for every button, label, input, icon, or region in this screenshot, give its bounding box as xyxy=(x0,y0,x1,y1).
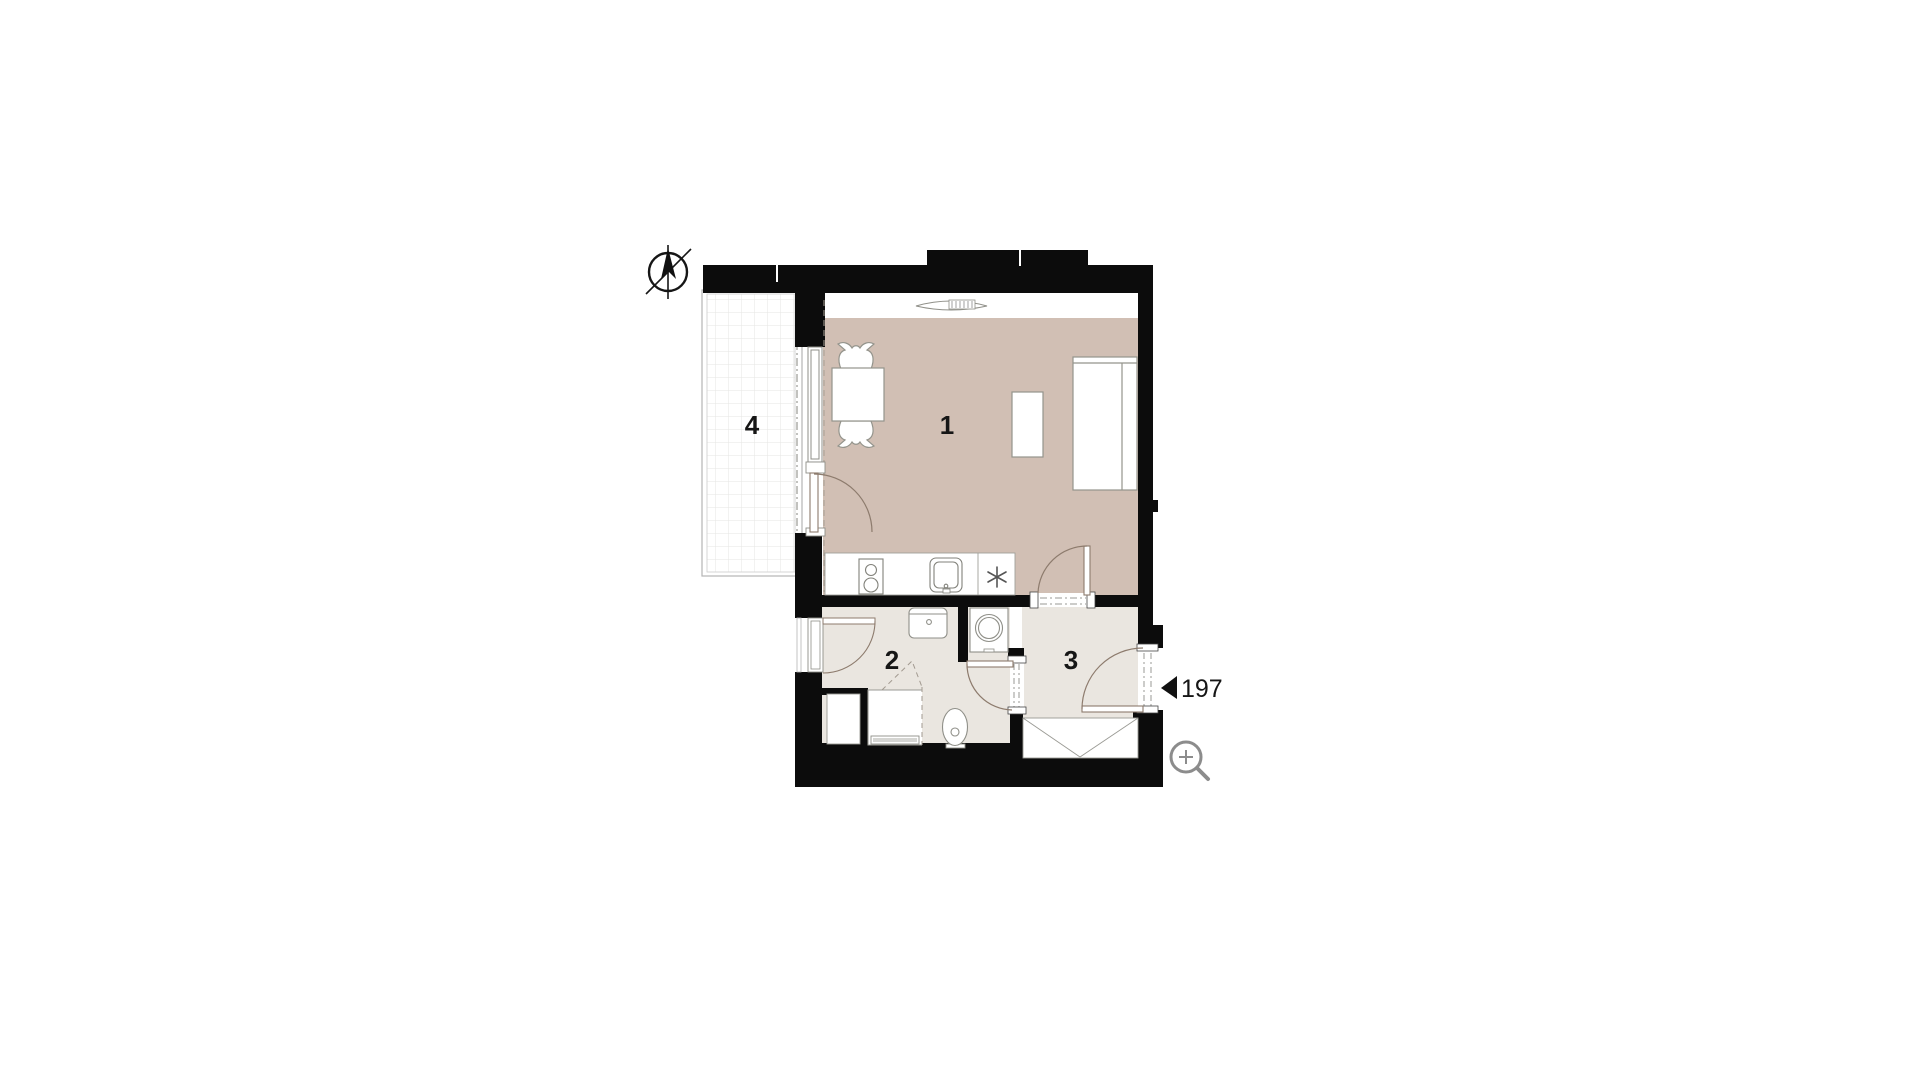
entrance-number: 197 xyxy=(1181,675,1223,703)
chair xyxy=(838,421,874,447)
door-jamb xyxy=(806,462,825,473)
wall-left-low xyxy=(795,672,822,763)
coffee-table xyxy=(1012,392,1043,457)
doorway-opening xyxy=(1038,593,1087,607)
entrance-marker: 197 xyxy=(1161,675,1223,703)
wall-chimney xyxy=(927,250,1088,266)
wall-top-joint xyxy=(776,265,778,282)
kitchen-counter xyxy=(825,553,1015,595)
room-label-living: 1 xyxy=(940,410,954,440)
room-label-hall: 3 xyxy=(1064,645,1078,675)
door-leaf xyxy=(1084,546,1090,595)
floor-plan-page: 1 2 3 4 197 xyxy=(0,0,1920,1080)
bathroom-sink xyxy=(909,608,947,638)
room-label-bathroom: 2 xyxy=(885,645,899,675)
room-label-balcony: 4 xyxy=(745,410,760,440)
radiator xyxy=(916,300,987,310)
dining-table xyxy=(832,368,884,421)
wall-pier-balcony-top xyxy=(795,265,825,347)
wall-top xyxy=(703,265,1153,293)
window-leaf xyxy=(823,618,875,624)
bed xyxy=(1073,357,1137,490)
doorway-opening xyxy=(1139,648,1156,710)
entrance-arrow-icon xyxy=(1161,676,1177,699)
wall-right-upper xyxy=(1138,265,1153,648)
door-leaf xyxy=(1082,706,1143,712)
north-compass-icon xyxy=(646,245,691,299)
washing-machine xyxy=(970,608,1008,652)
wardrobe xyxy=(1023,718,1138,758)
hall-floor xyxy=(1022,607,1138,718)
wall-chimney-joint xyxy=(1019,250,1021,266)
zoom-magnifier-icon[interactable] xyxy=(1171,742,1208,779)
balcony-door-leaf xyxy=(810,473,818,532)
service-shaft xyxy=(827,694,860,744)
kitchen xyxy=(825,553,1015,595)
wall-bottom xyxy=(795,758,1163,787)
kitchen-sink xyxy=(930,558,962,593)
shower-drain xyxy=(871,736,919,744)
wall-right-tick xyxy=(1151,500,1158,512)
stove xyxy=(859,559,883,594)
wall-kitchen-right xyxy=(1088,595,1138,607)
balcony-window xyxy=(808,347,822,462)
chair xyxy=(838,343,874,369)
floor-plan: 1 2 3 4 197 xyxy=(0,0,1920,1080)
wall-kitchen-left xyxy=(795,595,1033,607)
door-leaf xyxy=(967,661,1013,667)
door-jamb xyxy=(1030,592,1038,608)
wall-sink-washer-stub xyxy=(958,607,968,662)
